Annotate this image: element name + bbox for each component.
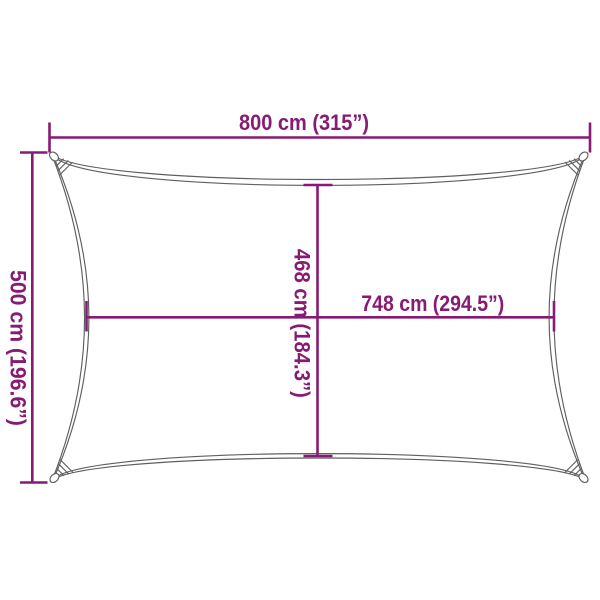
svg-text:500 cm (196.6”): 500 cm (196.6”)	[6, 270, 31, 426]
svg-text:468 cm (184.3”): 468 cm (184.3”)	[290, 249, 315, 398]
svg-text:748 cm (294.5”): 748 cm (294.5”)	[361, 291, 504, 316]
svg-text:800 cm (315”): 800 cm (315”)	[239, 110, 369, 135]
